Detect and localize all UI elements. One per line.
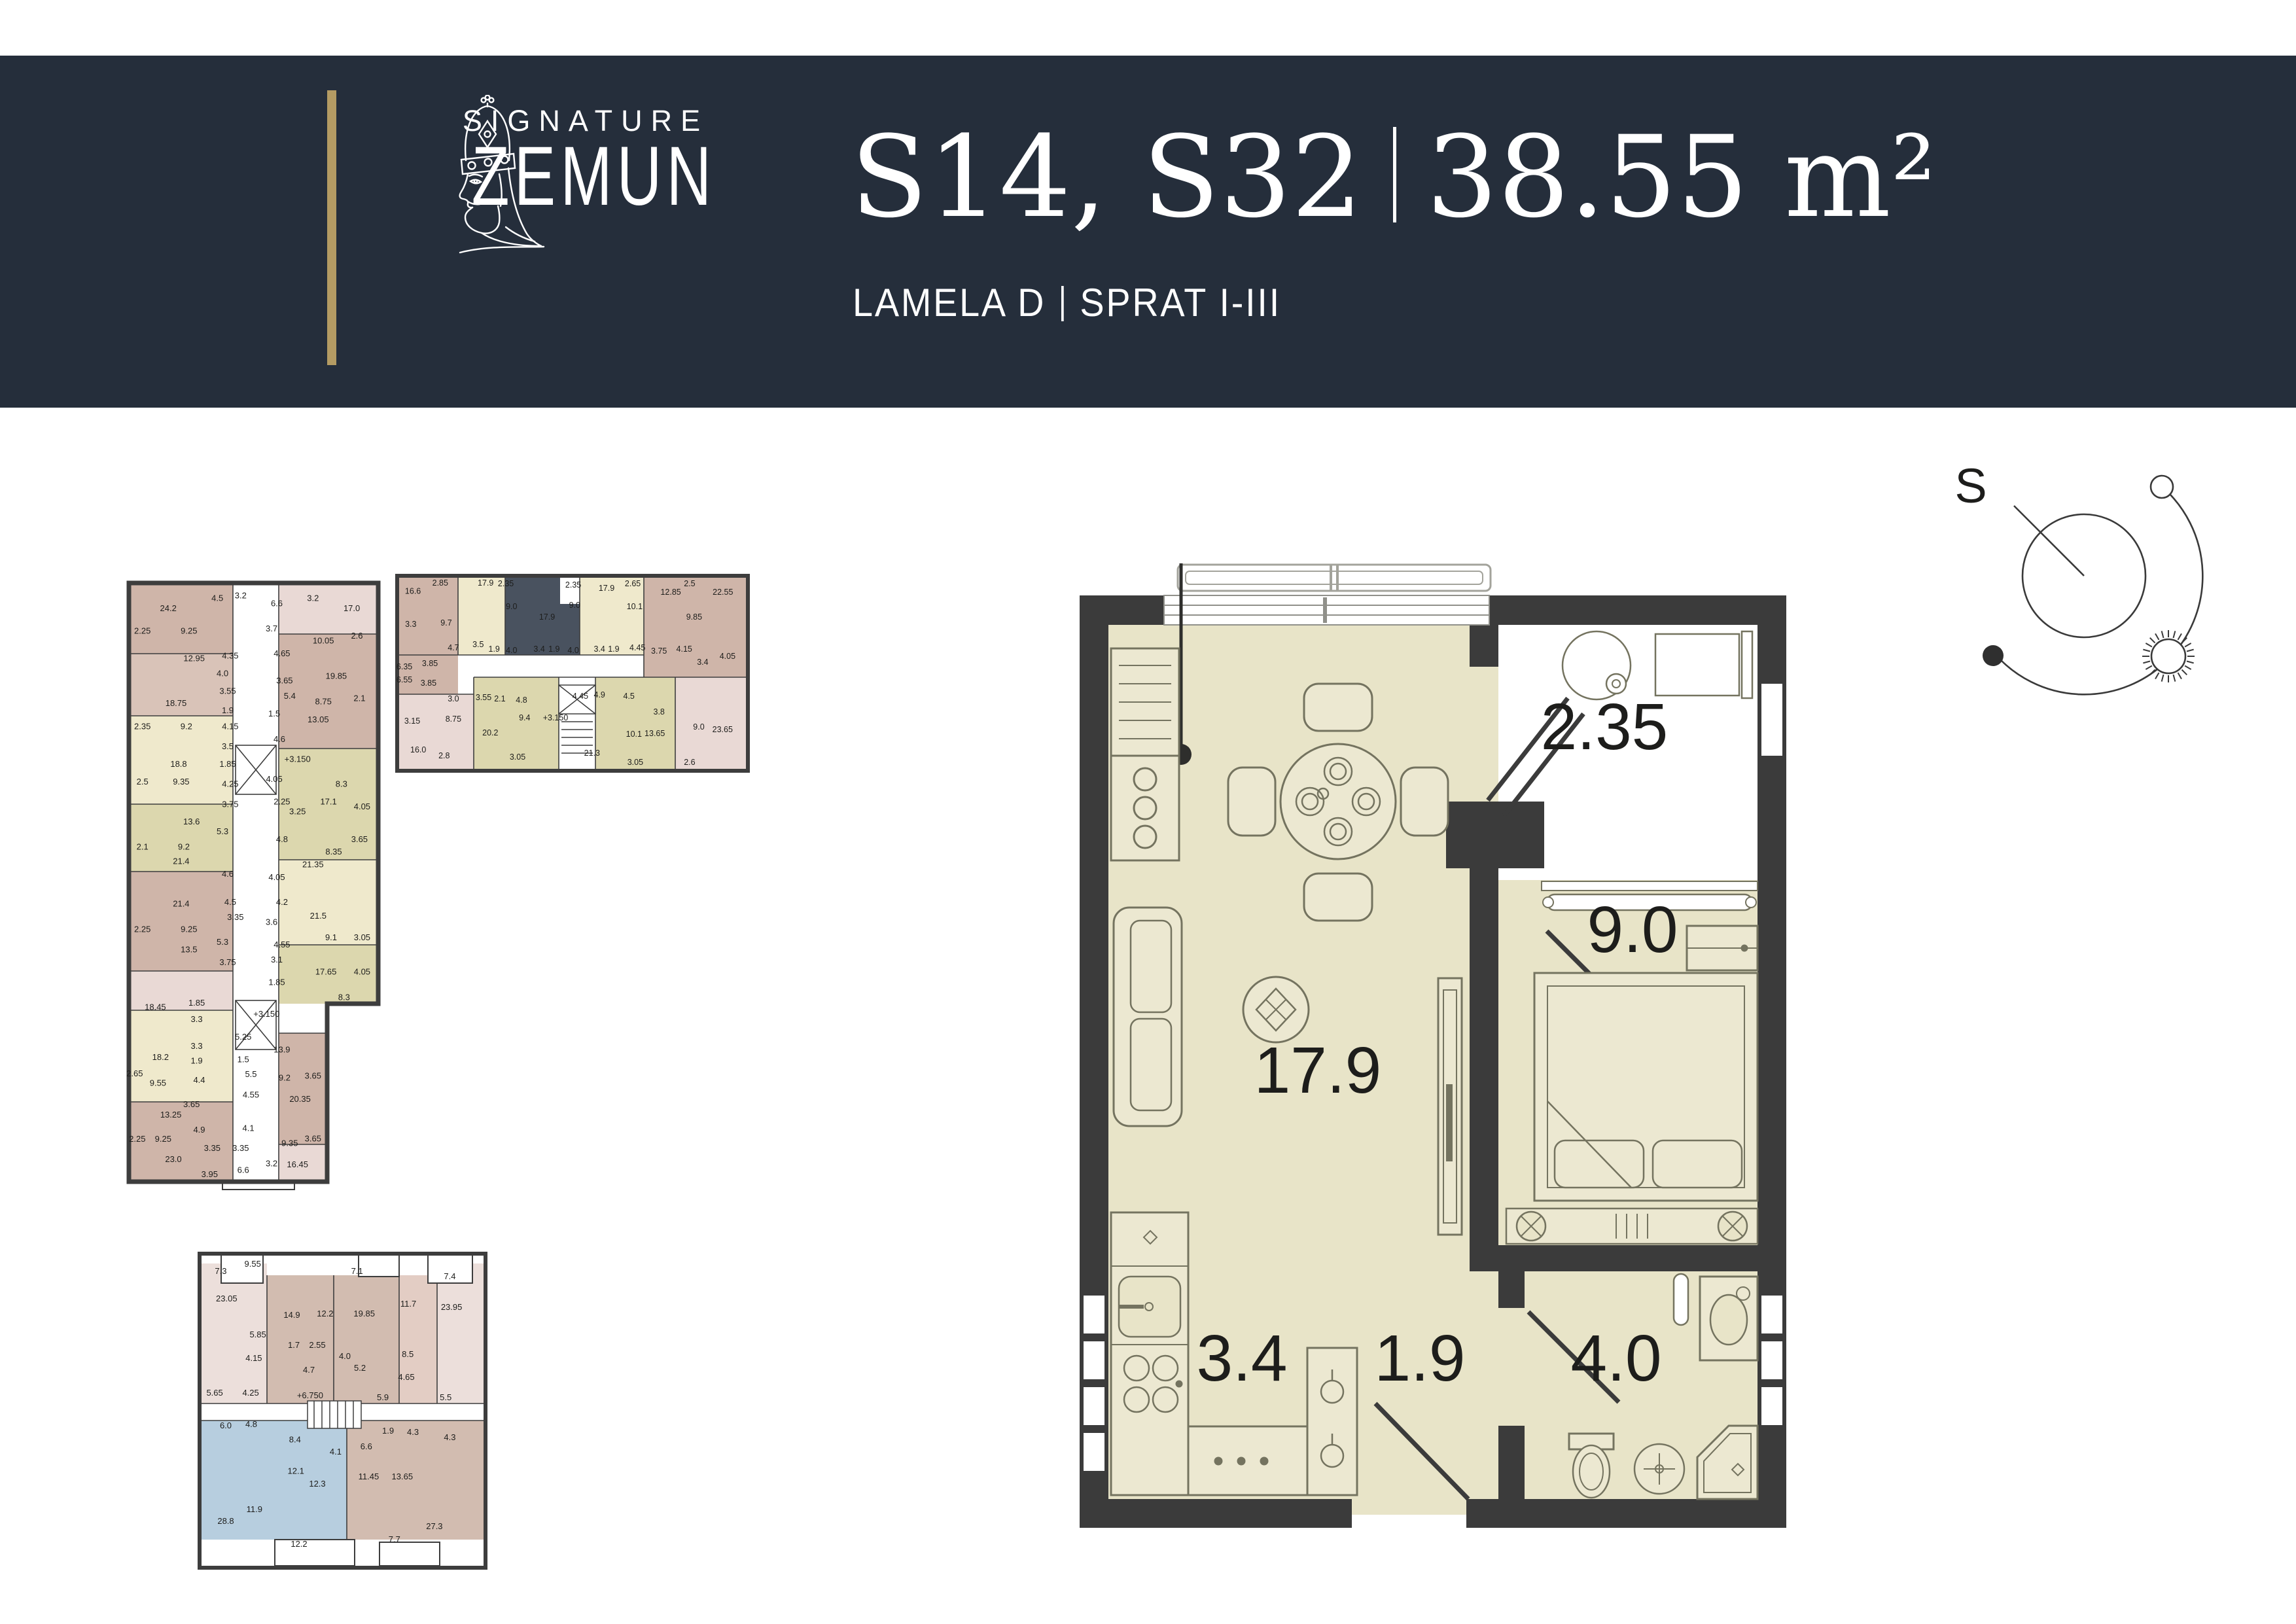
area-label: 3.55: [476, 693, 491, 702]
area-label: 13.6: [183, 817, 200, 826]
area-label: 4.05: [720, 652, 735, 661]
area-label: 4.5: [224, 897, 236, 907]
area-label: 1.85: [188, 998, 205, 1008]
area-label: 4.05: [354, 802, 370, 811]
area-label: 9.0: [569, 601, 580, 610]
area-label: 10.1: [627, 602, 643, 611]
area-label: 23.65: [713, 725, 733, 734]
area-label: 1.5: [268, 709, 280, 718]
area-label: 3.75: [222, 799, 238, 809]
area-label: 3.4: [697, 658, 708, 667]
area-label: 4.9: [594, 690, 605, 699]
area-label: 4.5: [211, 593, 223, 603]
area-label: 5.85: [249, 1330, 266, 1339]
area-label: 4.0: [339, 1351, 351, 1361]
area-label: 4.0: [1570, 1322, 1661, 1395]
area-label: 5.2: [354, 1363, 366, 1373]
sun-orientation-diagram: S: [1930, 451, 2244, 733]
area-label: 3.75: [219, 957, 236, 967]
area-label: 3.35: [227, 912, 243, 922]
area-label: 3.5: [222, 741, 234, 751]
area-label: 9.25: [181, 626, 197, 636]
area-label: 2.55: [309, 1340, 325, 1350]
area-label: 5.4: [284, 691, 296, 701]
area-label: 4.45: [573, 692, 588, 701]
area-label: 2.1: [137, 841, 149, 851]
area-label: 23.05: [216, 1294, 238, 1303]
area-label: 4.9: [193, 1125, 205, 1135]
area-label: 2.35: [565, 580, 581, 590]
area-label: 4.55: [243, 1089, 259, 1099]
area-label: 9.2: [178, 841, 190, 851]
area-label: 2.25: [134, 626, 150, 636]
area-label: 13.5: [181, 944, 197, 954]
area-label: 4.8: [245, 1419, 257, 1429]
area-label: 5.9: [377, 1392, 389, 1402]
area-label: 12.95: [183, 653, 205, 663]
area-label: 6.0: [220, 1421, 232, 1430]
area-label: 13.65: [392, 1472, 414, 1481]
area-label: +3.150: [253, 1009, 279, 1019]
area-label: 9.4: [519, 713, 530, 722]
area-label: 3.3: [191, 1041, 203, 1051]
area-label: 1.9: [548, 644, 559, 654]
area-label: 6.6: [361, 1441, 372, 1451]
area-label: 4.55: [274, 940, 290, 949]
overview-plan-tall: 24.24.53.26.63.217.02.259.253.710.052.61…: [124, 578, 383, 1193]
area-label: 18.8: [170, 759, 186, 769]
area-label: 8.3: [336, 779, 347, 789]
area-label: 2.6: [684, 758, 695, 767]
area-label: 4.65: [274, 648, 290, 658]
area-label: 3.05: [354, 932, 370, 942]
apartment-floor-plan: 17.99.02.353.41.94.0: [1080, 559, 1786, 1534]
area-label: 2.5: [684, 579, 695, 588]
area-label: 4.8: [276, 834, 288, 844]
area-label: 4.2: [276, 897, 288, 907]
area-label: 12.85: [660, 588, 680, 597]
area-label: 3.55: [219, 686, 236, 696]
area-label: 3.65: [351, 834, 368, 844]
area-label: 3.05: [510, 752, 525, 762]
area-label: 1.9: [608, 644, 619, 654]
area-label: 21.35: [302, 859, 324, 869]
area-label: 21.3: [584, 749, 600, 758]
balcony-railing: [1178, 565, 1491, 591]
area-label: 4.25: [242, 1388, 258, 1398]
area-label: 4.25: [222, 779, 238, 789]
area-label: 9.7: [440, 618, 451, 627]
area-label: 3.3: [191, 1014, 203, 1024]
area-label: 4.6: [222, 869, 234, 879]
area-label: 11.45: [359, 1472, 380, 1481]
area-label: 6.6: [238, 1165, 249, 1175]
area-label: 9.2: [279, 1072, 291, 1082]
area-label: 3.1: [271, 955, 283, 964]
area-label: 8.5: [402, 1349, 414, 1359]
area-label: 17.9: [599, 584, 614, 593]
area-label: 17.1: [320, 797, 336, 807]
area-label: 3.7: [266, 624, 277, 633]
area-label: 3.35: [232, 1143, 249, 1153]
page-header: SIGNATURE ZEMUN S14, S3238.55 m² LAMELA …: [0, 56, 2296, 408]
area-label: 12.1: [288, 1466, 304, 1476]
area-label: 16.6: [405, 586, 421, 595]
area-label: 4.05: [268, 872, 285, 882]
area-label: 17.65: [315, 967, 337, 977]
title-separator: [1393, 127, 1396, 222]
area-label: 16.0: [410, 745, 426, 754]
area-label: 4.0: [506, 646, 517, 655]
area-label: 3.65: [276, 676, 292, 686]
lamela-label: LAMELA D: [853, 281, 1046, 325]
area-label: 4.1: [243, 1123, 255, 1133]
area-label: 21.5: [310, 911, 327, 921]
area-label: 9.55: [150, 1078, 166, 1088]
area-label: 22.55: [713, 588, 733, 597]
area-label: 2.65: [625, 579, 641, 588]
area-label: 28.8: [217, 1516, 234, 1526]
area-label: 7.7: [389, 1534, 400, 1544]
area-label: 3.4: [1196, 1322, 1287, 1395]
area-label: 3.2: [235, 591, 247, 601]
area-label: 9.25: [155, 1134, 171, 1144]
overview-plan-wide: 16.62.8517.92.359.02.359.017.917.92.6510…: [395, 574, 750, 773]
area-label: 23.0: [165, 1154, 181, 1164]
area-label: 7.3: [215, 1266, 226, 1276]
area-label: 3.65: [183, 1099, 200, 1109]
area-label: 13.05: [308, 715, 329, 724]
area-label: 20.35: [289, 1094, 311, 1104]
area-label: 3.4: [594, 644, 605, 654]
area-label: 7.1: [351, 1266, 363, 1276]
sprat-label: SPRAT I-III: [1080, 281, 1281, 325]
area-label: 5.5: [440, 1392, 451, 1402]
area-label: 3.6: [266, 917, 277, 927]
area-label: 16.45: [287, 1159, 308, 1169]
brand-name-text: ZEMUN: [472, 138, 716, 215]
area-label: 5.3: [217, 937, 228, 947]
area-label: 2.25: [134, 925, 150, 934]
area-label: 3.4: [533, 644, 544, 654]
area-label: 9.55: [245, 1259, 261, 1269]
area-label: 11.7: [400, 1299, 416, 1309]
area-label: 4.0: [567, 646, 578, 655]
area-label: 10.05: [313, 635, 334, 645]
area-label: 13.25: [160, 1110, 182, 1120]
area-label: 1.9: [382, 1426, 394, 1436]
area-label: 3.2: [266, 1158, 277, 1168]
area-label: 4.15: [677, 644, 692, 654]
area-label: 10.1: [626, 730, 642, 739]
area-label: 2.35: [1541, 690, 1669, 764]
area-label: 9.85: [686, 612, 702, 622]
area-label: 19.85: [353, 1309, 375, 1318]
area-label: 3.65: [305, 1133, 321, 1143]
area-label: 14.9: [283, 1310, 300, 1320]
brochure-page: { "header": { "brand_top": "SIGNATURE", …: [0, 0, 2296, 1624]
area-label: 6.55: [397, 675, 412, 684]
area-label: 18.75: [166, 698, 187, 708]
area-label: 1.9: [1374, 1322, 1465, 1395]
south-label: S: [1954, 459, 1987, 513]
area-label: +3.150: [543, 713, 569, 722]
area-label: 21.4: [173, 899, 189, 909]
area-label: 1.9: [489, 644, 500, 654]
area-label: 1.7: [288, 1340, 300, 1350]
area-label: 2.35: [134, 721, 150, 731]
area-label: 8.4: [289, 1435, 301, 1445]
area-label: 2.1: [494, 694, 505, 703]
area-label: 9.0: [506, 602, 517, 611]
area-label: 3.05: [627, 758, 643, 767]
area-label: 9.2: [181, 721, 192, 731]
area-label: 2.6: [351, 631, 362, 641]
area-label: 4.15: [245, 1353, 262, 1363]
area-label: 11.9: [247, 1504, 262, 1514]
area-label: 12.2: [291, 1539, 307, 1549]
area-label: 1.9: [191, 1055, 203, 1065]
area-label: 9.1: [325, 932, 337, 942]
area-label: 4.4: [193, 1075, 205, 1085]
area-label: 5.3: [217, 826, 228, 836]
area-label: 27.3: [426, 1521, 442, 1531]
area-label: 9.0: [693, 722, 704, 732]
area-label: 8.3: [338, 993, 350, 1002]
north-dot: [1983, 645, 2004, 666]
area-label: 2.1: [353, 694, 365, 703]
area-label: 3.2: [307, 593, 319, 603]
area-label: 8.75: [315, 696, 332, 706]
area-label: 5.65: [206, 1388, 222, 1398]
area-label: 1.5: [238, 1055, 249, 1065]
area-label: +6.750: [297, 1390, 323, 1400]
area-label: 20.2: [482, 728, 498, 737]
area-label: 2.25: [274, 797, 290, 807]
area-label: 4.45: [629, 643, 645, 652]
area-label: 6.6: [271, 599, 283, 609]
area-label: 3.75: [651, 646, 667, 656]
area-label: 1.85: [219, 759, 236, 769]
area-label: 4.6: [274, 734, 285, 744]
area-label: 4.5: [624, 692, 635, 701]
area-label: 23.95: [441, 1302, 463, 1312]
area-label: 12.3: [309, 1479, 325, 1489]
area-label: 1.85: [268, 978, 285, 987]
area-label: 3.0: [448, 694, 459, 703]
area-label: 18.2: [152, 1052, 169, 1062]
stair-core: [308, 1401, 361, 1428]
area-label: 5.25: [235, 1032, 251, 1042]
area-label: 3.25: [289, 807, 306, 817]
brand-logo: SIGNATURE ZEMUN: [429, 95, 743, 215]
living-room-window: [1164, 595, 1489, 625]
area-label: 8.75: [446, 715, 461, 724]
area-label: 4.05: [354, 967, 370, 977]
unit-area: 38.55 m²: [1426, 111, 1936, 243]
overview-plan-bottom: 7.39.557.17.423.0514.912.219.8511.723.95…: [198, 1252, 487, 1570]
area-label: 3.95: [202, 1169, 218, 1179]
area-label: +3.150: [285, 754, 311, 764]
sun-icon: [2142, 630, 2195, 682]
unit-subtitle: LAMELA DSPRAT I-III: [853, 280, 1281, 325]
area-label: 13.65: [645, 729, 665, 738]
area-label: 17.9: [478, 578, 493, 588]
area-label: 4.8: [516, 696, 527, 705]
area-label: 18.45: [145, 1002, 166, 1012]
gold-divider: [327, 90, 336, 365]
area-label: 17.9: [1254, 1034, 1382, 1107]
unit-title: S14, S3238.55 m²: [851, 121, 1936, 234]
area-label: 5.5: [245, 1069, 256, 1079]
area-label: 9.35: [281, 1139, 298, 1148]
area-label: 3.3: [405, 620, 416, 629]
area-label: 12.2: [317, 1309, 333, 1318]
area-label: 9.35: [173, 777, 189, 786]
area-label: 7.4: [444, 1271, 455, 1281]
area-label: 17.9: [539, 612, 555, 622]
area-label: 4.65: [398, 1372, 414, 1382]
area-label: 3.65: [305, 1071, 321, 1081]
area-label: 2.5: [137, 777, 149, 786]
area-label: 17.0: [344, 603, 360, 613]
area-label: 4.3: [444, 1432, 455, 1442]
area-label: 2.25: [129, 1134, 145, 1144]
area-label: 3.85: [422, 659, 438, 668]
area-label: 13.9: [274, 1045, 290, 1055]
area-label: 4.7: [448, 643, 459, 652]
area-label: 19.85: [326, 671, 347, 680]
area-label: 4.15: [222, 721, 238, 731]
area-label: 24.2: [160, 603, 177, 613]
area-label: 6.35: [397, 662, 412, 671]
area-label: 3.35: [204, 1143, 221, 1153]
area-label: 4.1: [330, 1447, 342, 1456]
area-label: 4.0: [217, 669, 228, 679]
area-label: 2.65: [126, 1068, 143, 1078]
unit-code: S14, S32: [851, 111, 1363, 243]
area-label: 3.8: [654, 707, 665, 716]
area-label: 9.0: [1587, 893, 1678, 966]
subtitle-separator: [1061, 286, 1064, 321]
area-label: 2.35: [498, 579, 514, 588]
area-label: 3.15: [404, 716, 420, 726]
area-label: 2.85: [433, 578, 448, 588]
area-label: 9.25: [181, 925, 197, 934]
area-label: 1.9: [222, 705, 234, 715]
area-label: 4.3: [407, 1427, 419, 1437]
area-label: 8.35: [325, 847, 342, 856]
area-label: 4.7: [303, 1365, 315, 1375]
area-label: 2.8: [438, 751, 450, 760]
area-label: 21.4: [173, 856, 189, 866]
area-label: 3.85: [421, 679, 436, 688]
area-label: 4.35: [222, 651, 238, 661]
area-label: 4.05: [266, 774, 282, 784]
area-label: 3.5: [472, 640, 484, 649]
